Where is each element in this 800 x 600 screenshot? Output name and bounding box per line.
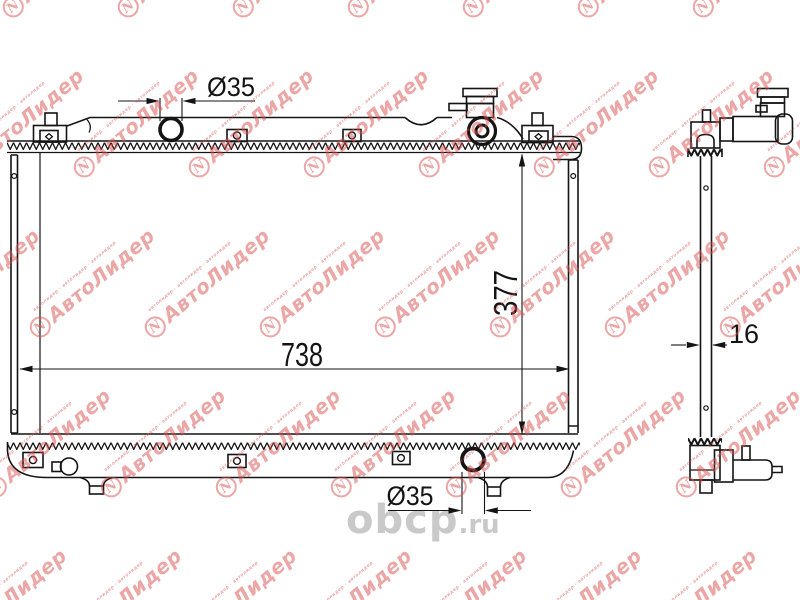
top-tank-right-curve bbox=[497, 118, 523, 140]
filler-neck-cap bbox=[449, 89, 497, 145]
side-hole-lower bbox=[704, 406, 708, 410]
bottom-bracket-hole-mid bbox=[228, 455, 246, 468]
side-hole-upper bbox=[704, 186, 708, 190]
dim-top-hole-arrow-right bbox=[183, 98, 196, 104]
dim-depth-arrow-right bbox=[712, 342, 725, 348]
radiator-side-view bbox=[688, 89, 793, 494]
left-side-frame bbox=[11, 155, 18, 433]
side-inlet-pipe bbox=[720, 114, 793, 144]
dim-top-hole-arrow-left bbox=[147, 98, 160, 104]
dim-height-arrow-bottom bbox=[519, 422, 525, 435]
side-filler-neck-cap bbox=[756, 89, 788, 117]
bottom-bracket-hole-left bbox=[23, 453, 43, 468]
dim-depth-label: 16 bbox=[729, 319, 759, 349]
top-tank-dip bbox=[405, 118, 437, 125]
top-tank-weld-mark bbox=[87, 120, 90, 133]
side-top-bracket bbox=[691, 110, 720, 148]
bottom-bracket-hole-right bbox=[393, 452, 411, 465]
bottom-foot-left bbox=[80, 478, 113, 495]
right-side-frame bbox=[569, 160, 579, 433]
dim-width-arrow-right bbox=[557, 366, 570, 372]
top-right-mount-bracket bbox=[522, 113, 553, 143]
bottom-foot-right bbox=[478, 478, 510, 497]
top-tank-edge bbox=[67, 118, 452, 127]
side-outlet-pipe bbox=[715, 446, 783, 482]
radiator-technical-drawing: 738 377 Ø35 Ø35 16 bbox=[0, 0, 800, 600]
top-left-mount-bracket bbox=[34, 113, 67, 142]
side-bottom-bracket bbox=[690, 446, 720, 494]
catalog-image-page: obcp .ru bbox=[0, 0, 800, 600]
side-top-crimp bbox=[688, 149, 722, 157]
top-bracket-1 bbox=[227, 130, 247, 142]
dim-bottom-hole-label: Ø35 bbox=[387, 481, 434, 511]
dimension-lines bbox=[20, 98, 728, 514]
dim-depth-arrow-left bbox=[687, 342, 700, 348]
top-bracket-2 bbox=[343, 130, 361, 142]
bottom-crimp-teeth bbox=[7, 442, 580, 450]
side-body bbox=[701, 156, 712, 437]
dim-bottom-hole-arrow-left bbox=[449, 507, 462, 513]
dim-bottom-hole-arrow-right bbox=[485, 507, 498, 513]
drain-plug bbox=[52, 458, 78, 475]
dim-width-arrow-left bbox=[20, 366, 33, 372]
dim-top-hole-label: Ø35 bbox=[207, 72, 255, 102]
top-crimp-teeth bbox=[7, 142, 580, 150]
dim-width-label: 738 bbox=[281, 336, 323, 373]
bottom-hole bbox=[462, 449, 484, 471]
side-bottom-crimp bbox=[688, 438, 722, 446]
dim-height-arrow-top bbox=[519, 154, 525, 167]
top-hole bbox=[160, 119, 182, 141]
dim-height-label: 377 bbox=[487, 270, 524, 316]
